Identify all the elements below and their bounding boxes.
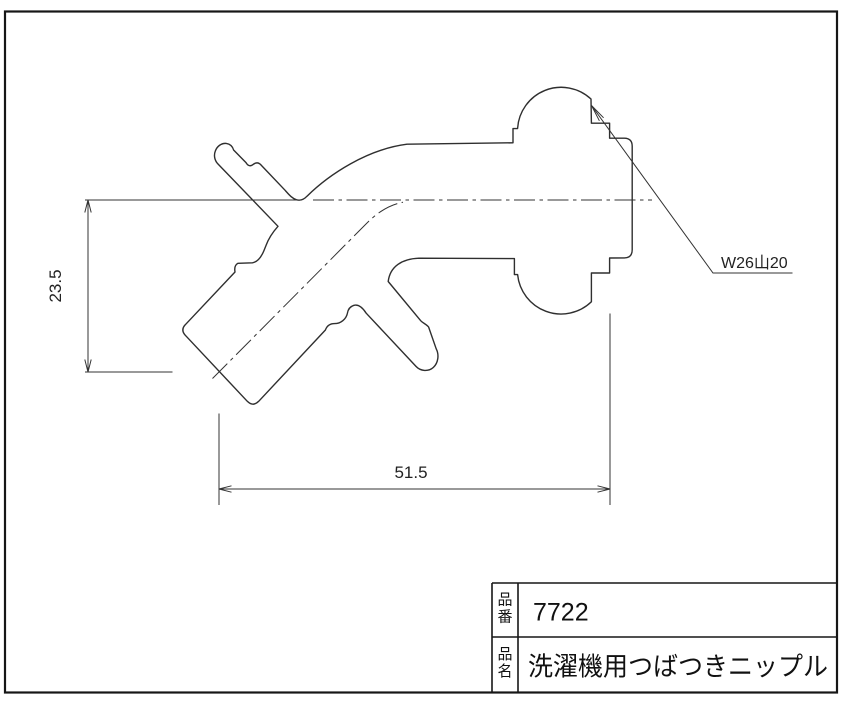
drawing-sheet: 23.5 51.5 W26山20 品 番 7722 品 名 洗濯機用つばつきニッ…: [0, 0, 843, 702]
part-number-label-bottom: 番: [497, 609, 512, 626]
thread-callout: W26山20: [592, 106, 793, 274]
title-block: 品 番 7722 品 名 洗濯機用つばつきニップル: [492, 583, 837, 693]
part-outline: [183, 87, 632, 404]
dimension-width: 51.5: [219, 314, 610, 506]
dimension-height: 23.5: [46, 200, 302, 372]
part-number-label-top: 品: [497, 592, 512, 609]
technical-drawing-svg: 23.5 51.5 W26山20 品 番 7722 品 名 洗濯機用つばつきニッ…: [0, 0, 843, 702]
part-number-value: 7722: [533, 599, 589, 627]
centerline-angled: [213, 202, 404, 378]
drawing-border: [5, 12, 837, 693]
dim-width-value: 51.5: [394, 463, 427, 482]
dim-height-value: 23.5: [46, 269, 65, 302]
leader-line: [592, 106, 793, 274]
part-name-label-bottom: 名: [497, 663, 512, 680]
part-name-label-top: 品: [497, 646, 512, 663]
thread-label: W26山20: [721, 254, 788, 272]
part-name-value: 洗濯機用つばつきニップル: [528, 652, 828, 682]
